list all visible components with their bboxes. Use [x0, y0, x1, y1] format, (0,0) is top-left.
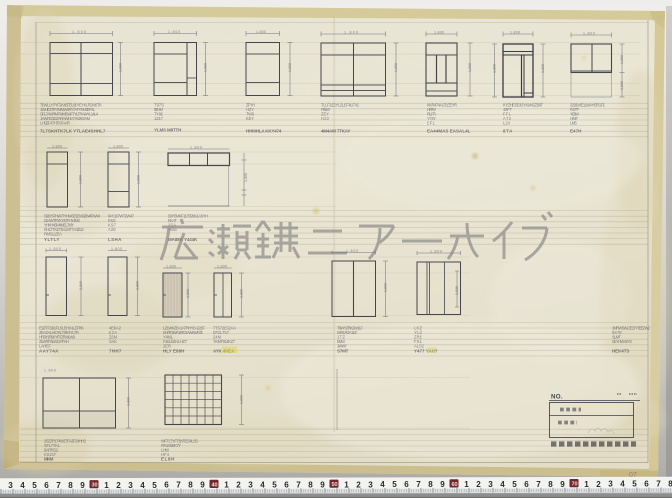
svg-text:LSHA: LSHA — [108, 237, 122, 242]
svg-text:1.800: 1.800 — [168, 30, 180, 34]
svg-text:6: 6 — [644, 480, 649, 489]
svg-text:5: 5 — [272, 481, 277, 490]
svg-text:1,800: 1,800 — [384, 283, 388, 292]
svg-text:1.800: 1.800 — [111, 247, 122, 251]
svg-text:1.800: 1.800 — [430, 250, 442, 254]
svg-text:LAHEF: LAHEF — [39, 343, 51, 348]
svg-text:S£YHW44YS: S£YHW44YS — [612, 339, 632, 344]
svg-text:2ER: 2ER — [163, 343, 171, 348]
svg-text:1.800: 1.800 — [346, 249, 358, 253]
svg-text:8: 8 — [548, 480, 553, 489]
svg-text:1.800: 1.800 — [190, 146, 202, 150]
svg-text:1,800: 1,800 — [204, 63, 208, 72]
svg-text:9: 9 — [560, 480, 565, 489]
svg-text:3: 3 — [608, 480, 613, 489]
svg-text:70: 70 — [571, 482, 577, 488]
svg-text:1,800: 1,800 — [288, 63, 292, 72]
svg-text:4: 4 — [380, 480, 385, 489]
svg-text:8TA: 8TA — [503, 129, 513, 134]
svg-text:YKMF91£KZ7: YKMF91£KZ7 — [213, 339, 236, 344]
svg-text:LMS: LMS — [570, 120, 577, 125]
svg-text:1: 1 — [104, 481, 109, 490]
svg-text:30: 30 — [91, 483, 97, 489]
svg-text:1.800: 1.800 — [166, 265, 176, 269]
svg-text:2: 2 — [476, 480, 481, 489]
svg-text:2: 2 — [356, 480, 361, 489]
svg-text:YLMS M8TTH: YLMS M8TTH — [154, 128, 182, 133]
svg-text:1.800: 1.800 — [52, 145, 62, 149]
svg-text:7HH7: 7HH7 — [109, 349, 122, 354]
svg-text:8: 8 — [188, 481, 193, 490]
svg-text:YLTLY: YLTLY — [44, 237, 60, 242]
svg-text:1,800: 1,800 — [127, 397, 131, 406]
svg-text:1,800: 1,800 — [186, 289, 190, 298]
svg-text:7: 7 — [296, 480, 301, 489]
svg-text:7: 7 — [56, 481, 61, 490]
svg-text:3: 3 — [248, 481, 253, 490]
svg-text:LH9ZF47HTKFAAR: LH9ZF47HTKFAAR — [40, 120, 70, 125]
svg-text:1.800: 1.800 — [113, 145, 123, 149]
svg-text:H22: H22 — [321, 116, 330, 121]
svg-text:1: 1 — [224, 481, 229, 490]
svg-text:EA44MAS EASAL4L: EA44MAS EASAL4L — [427, 129, 471, 134]
svg-text:KEY: KEY — [246, 116, 254, 121]
svg-text:8: 8 — [68, 481, 73, 490]
svg-text:4: 4 — [260, 481, 265, 490]
svg-text:4: 4 — [500, 480, 505, 489]
svg-text:2: 2 — [116, 481, 121, 490]
svg-text:ALS2: ALS2 — [414, 343, 425, 348]
svg-text:6: 6 — [284, 481, 289, 490]
svg-text:E47H: E47H — [570, 129, 582, 134]
svg-text:1.800: 1.800 — [49, 247, 61, 251]
svg-text:HLY E88H: HLY E88H — [163, 349, 185, 354]
svg-text:1,800: 1,800 — [79, 281, 83, 290]
svg-text:1.800: 1.800 — [44, 369, 56, 373]
svg-text:1,800: 1,800 — [394, 63, 398, 72]
svg-text:NO.: NO. — [551, 394, 563, 401]
svg-text:1: 1 — [464, 480, 469, 489]
svg-text:4: 4 — [140, 481, 145, 490]
svg-text:5: 5 — [32, 481, 37, 490]
svg-text:1,800: 1,800 — [136, 281, 140, 290]
svg-text:HHMHLA KKY474: HHMHLA KKY474 — [246, 129, 282, 134]
svg-text:1,800: 1,800 — [240, 395, 244, 404]
svg-text:£FL: £FL — [427, 120, 436, 125]
svg-text:AAY74A: AAY74A — [39, 349, 59, 354]
svg-text:EL8H: EL8H — [161, 457, 175, 462]
svg-text:60: 60 — [451, 482, 457, 488]
svg-text:1,800: 1,800 — [79, 175, 83, 184]
svg-text:1,800: 1,800 — [620, 81, 624, 90]
svg-text:MKM: MKM — [44, 457, 54, 462]
svg-text:L24: L24 — [503, 120, 511, 125]
svg-text:3: 3 — [488, 480, 493, 489]
svg-text:1.800: 1.800 — [510, 31, 520, 35]
svg-text:6: 6 — [164, 481, 169, 490]
svg-text:1Z£7: 1Z£7 — [154, 116, 164, 121]
svg-text:2: 2 — [236, 481, 241, 490]
svg-text:1,800: 1,800 — [468, 63, 472, 72]
svg-text:7: 7 — [656, 480, 661, 489]
svg-text:1,800: 1,800 — [137, 175, 141, 184]
svg-text:5: 5 — [152, 481, 157, 490]
svg-text:HEK4TS: HEK4TS — [612, 349, 630, 354]
svg-text:7: 7 — [176, 481, 181, 490]
svg-text:3: 3 — [8, 481, 13, 490]
svg-text:1,800: 1,800 — [493, 64, 497, 73]
svg-text:9: 9 — [200, 481, 205, 490]
svg-text:6: 6 — [44, 481, 49, 490]
svg-text:3: 3 — [368, 480, 373, 489]
svg-text:1,800: 1,800 — [455, 286, 459, 295]
svg-text:8: 8 — [308, 480, 313, 489]
svg-text:4: 4 — [620, 480, 625, 489]
svg-text:1,800: 1,800 — [244, 173, 248, 182]
svg-text:5: 5 — [512, 480, 517, 489]
svg-text:7: 7 — [416, 480, 421, 489]
svg-text:SAK: SAK — [109, 339, 117, 344]
svg-text:1.800: 1.800 — [434, 31, 444, 35]
svg-text:40: 40 — [211, 482, 217, 488]
svg-text:1.800: 1.800 — [583, 32, 595, 36]
svg-text:5: 5 — [392, 480, 397, 489]
svg-text:7L7SKHTK7LK YTLAE4SHHL7: 7L7SKHTK7LK YTLAE4SHHL7 — [40, 129, 106, 134]
svg-text:7: 7 — [536, 480, 541, 489]
svg-text:4: 4 — [20, 481, 25, 490]
svg-text:6: 6 — [524, 480, 529, 489]
svg-text:50: 50 — [331, 482, 337, 488]
svg-text:1,800: 1,800 — [620, 55, 624, 64]
svg-text:S7MT: S7MT — [337, 349, 349, 354]
svg-text:3: 3 — [128, 481, 133, 490]
svg-text:1WWY: 1WWY — [337, 343, 347, 348]
svg-text:2: 2 — [596, 480, 601, 489]
svg-text:1: 1 — [344, 480, 349, 489]
svg-text:A2E: A2E — [108, 227, 116, 232]
svg-text:8: 8 — [428, 480, 433, 489]
svg-text:RMSLL£EA: RMSLL£EA — [44, 231, 62, 236]
svg-text:1,800: 1,800 — [541, 64, 545, 73]
svg-text:6: 6 — [404, 480, 409, 489]
svg-text:9: 9 — [440, 480, 445, 489]
svg-text:9: 9 — [80, 481, 85, 490]
svg-text:1.800: 1.800 — [256, 30, 266, 34]
svg-text:9: 9 — [320, 480, 325, 489]
svg-text:1: 1 — [584, 480, 589, 489]
svg-text:5: 5 — [632, 480, 637, 489]
svg-text:1,800: 1,800 — [240, 289, 244, 298]
svg-text:4M4AM TTKAY: 4M4AM TTKAY — [321, 129, 351, 134]
svg-text:1.800: 1.800 — [217, 265, 227, 269]
svg-text:1,800: 1,800 — [119, 63, 123, 72]
svg-text:8: 8 — [668, 480, 672, 489]
